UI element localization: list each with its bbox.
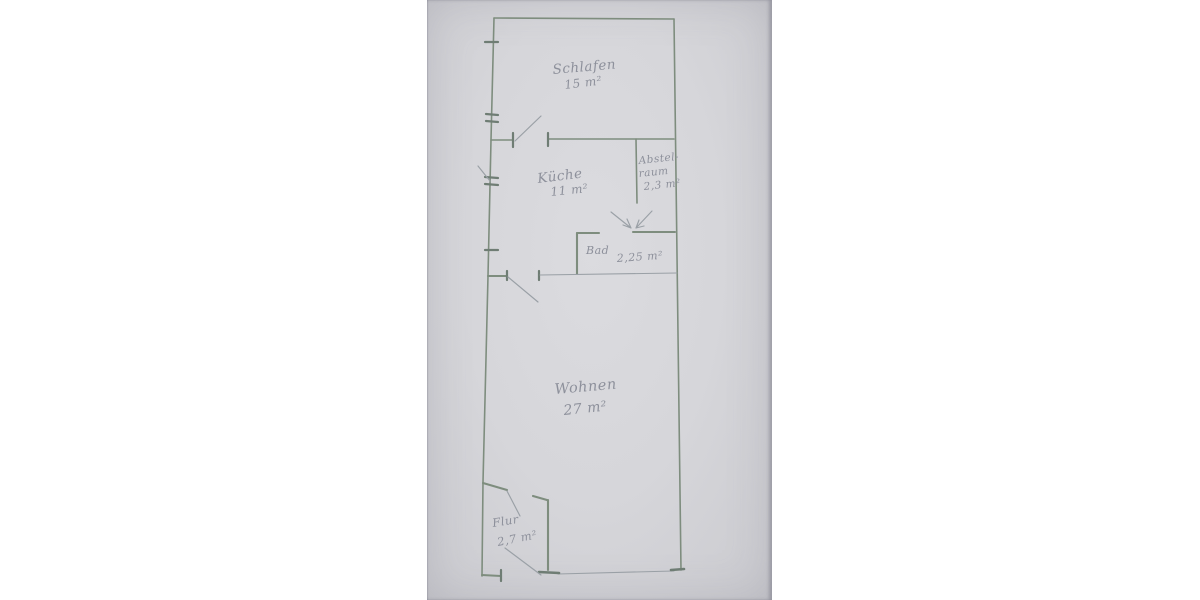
door-swing-entrance bbox=[505, 548, 541, 575]
wall-right bbox=[674, 19, 681, 570]
room-area-wohnen: 27 m² bbox=[562, 399, 608, 420]
room-label-bad: Bad bbox=[585, 244, 609, 257]
room-area-bad: 2,25 m² bbox=[615, 249, 663, 265]
wall-kueche-abstellraum bbox=[636, 139, 637, 203]
wall-top bbox=[494, 18, 674, 19]
schlafen-walls bbox=[491, 116, 674, 147]
arrow-left bbox=[611, 212, 631, 228]
window-tick bbox=[486, 121, 498, 122]
room-area-flur: 2,7 m² bbox=[495, 527, 538, 549]
window-tick bbox=[485, 184, 498, 185]
wohnen-top-wall bbox=[488, 271, 677, 302]
room-area-kueche: 11 m² bbox=[550, 181, 589, 199]
wall-flur-diagonal-left bbox=[483, 483, 507, 490]
screenshot: Schlafen 15 m² Küche 11 m² Abstel- raum … bbox=[0, 0, 1200, 600]
window-swing-kueche bbox=[478, 166, 490, 181]
wall-wohnen-top-right bbox=[540, 273, 677, 275]
wall-bottom bbox=[558, 571, 674, 574]
room-label-flur: Flur bbox=[490, 512, 520, 530]
floor-plan-drawing: Schlafen 15 m² Küche 11 m² Abstel- raum … bbox=[427, 0, 772, 600]
left-wall-marks bbox=[478, 42, 498, 250]
arrow-right bbox=[636, 211, 652, 228]
wall-flur-bottom-left bbox=[482, 575, 501, 576]
wall-bottom-right-corner bbox=[671, 569, 684, 570]
room-label-abstellraum-line1: Abstel- bbox=[637, 151, 680, 167]
outer-walls bbox=[482, 18, 684, 576]
room-label-wohnen: Wohnen bbox=[554, 377, 617, 398]
floor-plan-photo: Schlafen 15 m² Küche 11 m² Abstel- raum … bbox=[427, 0, 772, 600]
door-swing-schlafen bbox=[515, 116, 541, 141]
wall-flur-diagonal-right bbox=[533, 496, 547, 500]
window-tick bbox=[486, 114, 498, 115]
room-label-abstellraum-line2: raum bbox=[638, 165, 669, 180]
door-swing-wohnen bbox=[508, 277, 538, 302]
wall-left bbox=[482, 18, 494, 576]
wall-flur-bottom-corner bbox=[539, 572, 559, 573]
room-labels: Schlafen 15 m² Küche 11 m² Abstel- raum … bbox=[490, 57, 681, 550]
